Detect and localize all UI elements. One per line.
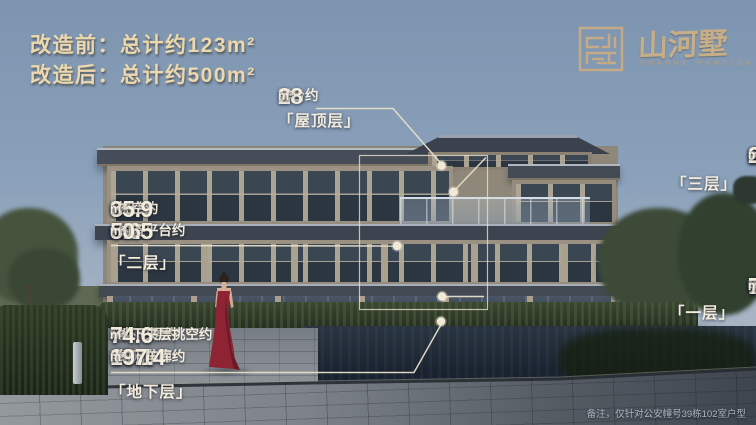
villa-main-roof [97,148,453,166]
bollard-light [73,342,82,384]
annotation-basement: 地下一层约74.6m²+地下夹层挑空约74.6m² +采光井约10.1m²+地下… [110,324,193,402]
tree-left-small [8,248,80,310]
brand-seal-icon [578,26,624,72]
floor-label-roof: 「屋顶层」 [278,109,361,131]
floor-label-basement: 「地下层」 [110,380,193,402]
annotation-first-floor: 前后花园约76m²+飘窗约1.4m²=约77.4m² 「一层」 [669,275,748,323]
brand-name: 山河墅 [637,18,729,65]
annotation-second-floor: 露台约9m²+挑空约35.9m² +设备平台约5.6m²=约50.5m² 「二层… [110,198,176,273]
area-text: 前后花园约76m²+飘窗约1.4m²=约77.4m² [669,275,748,297]
hedge-foreground [0,305,108,395]
area-text: +采光井约10.1m²+地下车库约38.1m²=约197.4m² [110,346,193,368]
brand-logo: 山河墅 SHANHE MANSION [576,22,752,80]
brand-subtitle: SHANHE MANSION [640,60,754,67]
floor-label-third: 「三层」 [671,172,748,194]
renovation-before-text: 改造前：总计约123m² [30,29,256,59]
scene: 改造前：总计约123m² 改造后：总计约500m² 山河墅 SHANHE MAN… [0,0,756,425]
villa-right-roof [508,164,620,180]
disclaimer-note: 备注，仅针对公安幢号39栋102室户型 [587,406,746,420]
annotation-third-floor: 露台约26.3m²+阳台约2.1m²=约28.4m² 「三层」 [671,144,748,194]
area-text: 地下一层约74.6m²+地下夹层挑空约74.6m² [110,324,193,346]
facade-pillars [111,244,611,282]
floor-label-first: 「一层」 [669,301,748,323]
floor-label-second: 「二层」 [110,251,176,273]
area-text: 露台约26.3m²+阳台约2.1m²=约28.4m² [671,144,748,166]
annotation-roof-level: 露台约28m² 「屋顶层」 [278,85,361,131]
area-text: 露台约9m²+挑空约35.9m² [110,198,176,220]
area-text: 露台约28m² [278,85,361,107]
area-text: +设备平台约5.6m²=约50.5m² [110,220,176,242]
renovation-after-text: 改造后：总计约500m² [30,59,256,89]
roof-ridge [438,135,578,138]
